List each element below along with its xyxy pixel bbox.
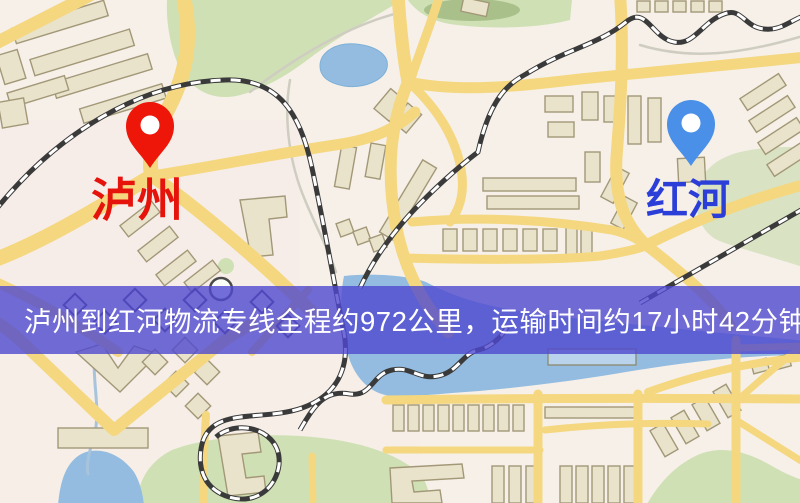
caption-banner: 泸州到红河物流专线全程约972公里，运输时间约17小时42分钟. <box>0 286 800 354</box>
caption-banner-text: 泸州到红河物流专线全程约972公里，运输时间约17小时42分钟. <box>24 306 800 337</box>
pin-hole <box>141 116 160 135</box>
pin-hole <box>682 114 701 133</box>
origin-label: 泸州 <box>91 174 183 226</box>
logistics-map-image: 泸州到红河物流专线全程约972公里，运输时间约17小时42分钟. 泸州 红河 <box>0 0 800 503</box>
map-canvas: 泸州到红河物流专线全程约972公里，运输时间约17小时42分钟. 泸州 红河 <box>0 0 800 503</box>
destination-label: 红河 <box>646 176 730 223</box>
